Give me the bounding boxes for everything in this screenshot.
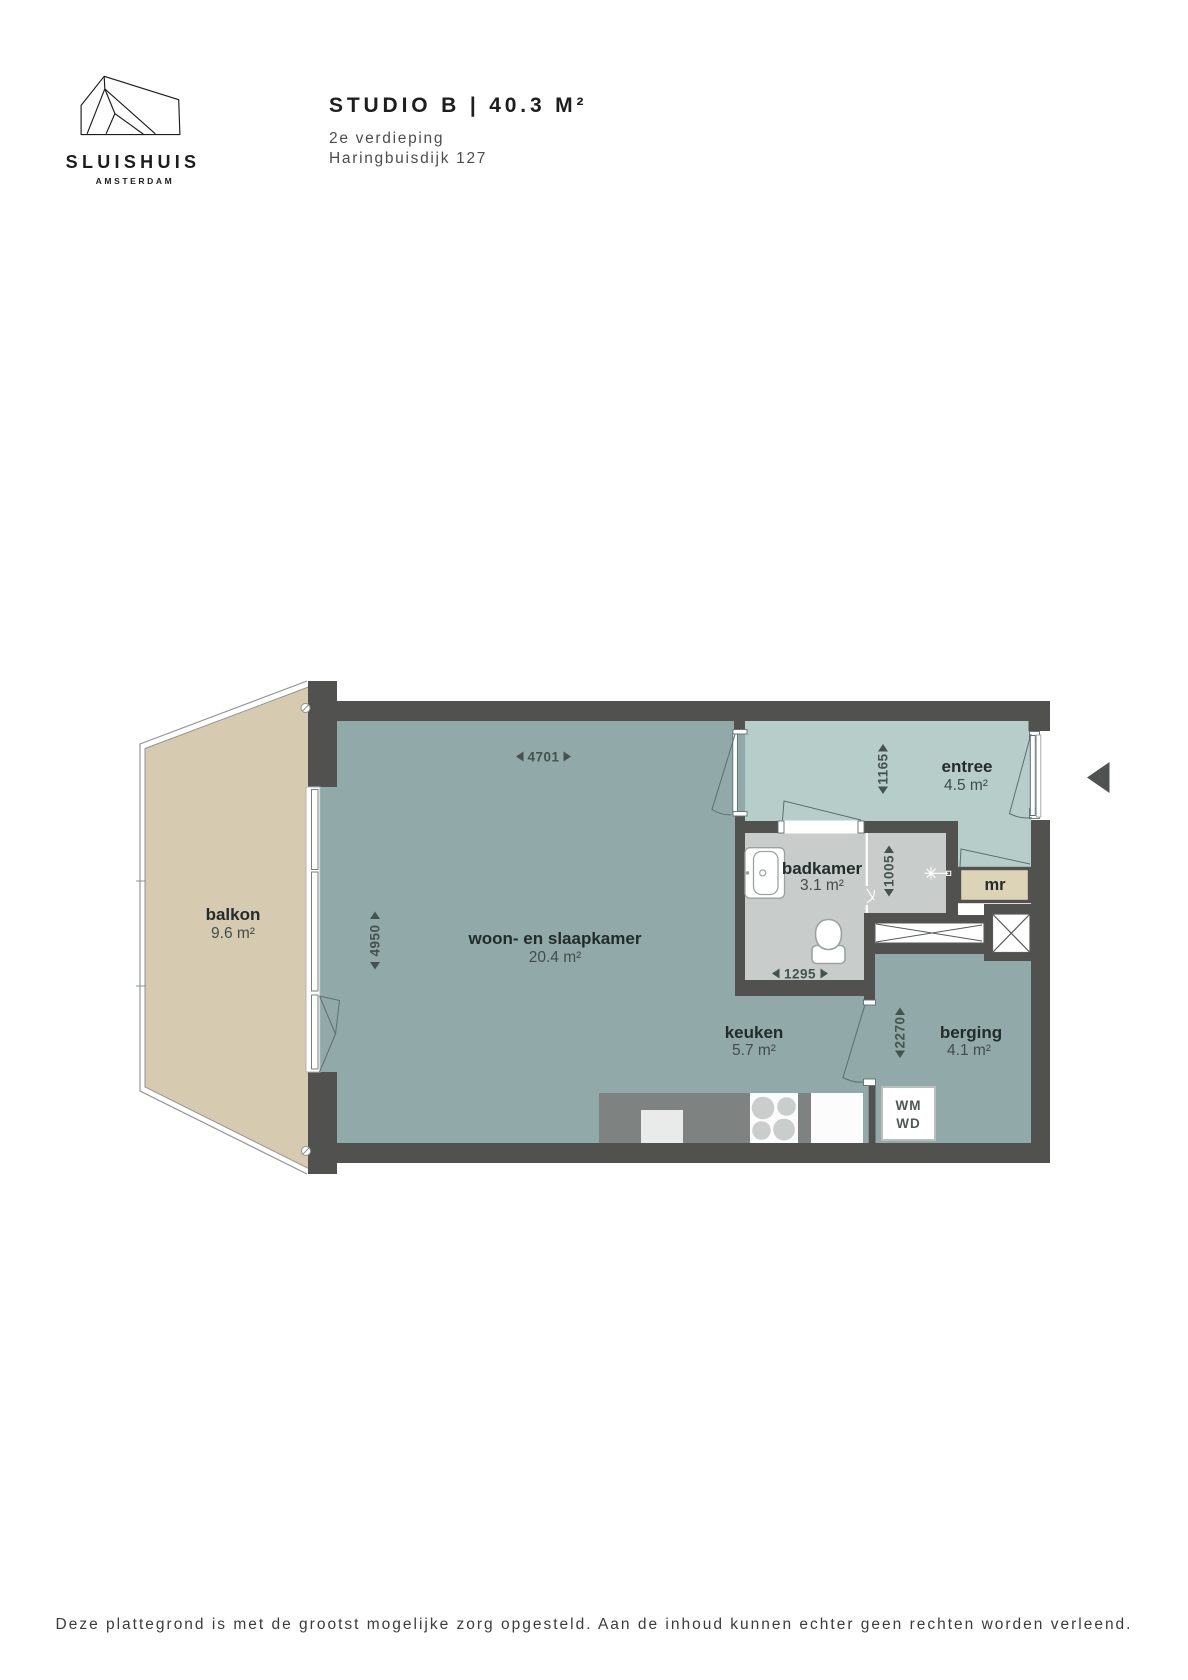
svg-text:4950: 4950 <box>368 924 383 956</box>
svg-text:1005: 1005 <box>882 855 897 887</box>
svg-text:WM: WM <box>896 1098 922 1113</box>
svg-text:4.5 m²: 4.5 m² <box>944 777 988 794</box>
svg-text:4.1 m²: 4.1 m² <box>947 1042 991 1059</box>
svg-text:entree: entree <box>941 757 992 776</box>
svg-text:1165: 1165 <box>876 753 891 784</box>
svg-text:2270: 2270 <box>893 1016 908 1048</box>
svg-text:berging: berging <box>940 1023 1002 1042</box>
svg-text:20.4 m²: 20.4 m² <box>529 949 582 966</box>
svg-text:balkon: balkon <box>206 905 261 924</box>
svg-text:badkamer: badkamer <box>782 859 863 878</box>
svg-text:mr: mr <box>984 876 1006 894</box>
svg-text:3.1 m²: 3.1 m² <box>800 877 844 894</box>
svg-text:1295: 1295 <box>784 967 816 982</box>
svg-text:woon- en slaapkamer: woon- en slaapkamer <box>468 929 642 948</box>
svg-text:keuken: keuken <box>725 1023 784 1042</box>
svg-text:9.6 m²: 9.6 m² <box>211 925 255 942</box>
svg-text:4701: 4701 <box>527 750 559 765</box>
svg-text:WD: WD <box>896 1116 921 1131</box>
svg-text:5.7 m²: 5.7 m² <box>732 1042 776 1059</box>
